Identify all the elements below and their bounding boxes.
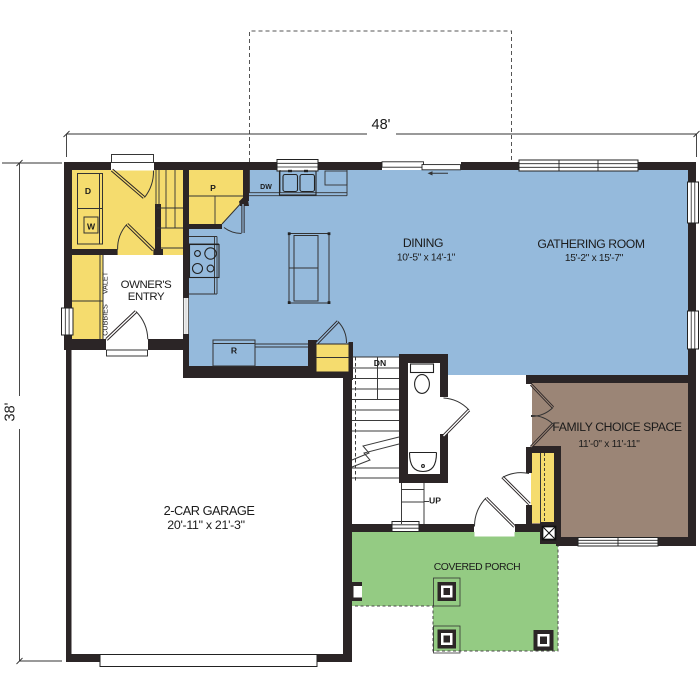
svg-text:10'-5" x 14'-1": 10'-5" x 14'-1" (397, 253, 456, 264)
svg-text:DN: DN (374, 358, 386, 368)
svg-text:11'-0" x 11'-11": 11'-0" x 11'-11" (578, 439, 640, 450)
svg-text:FAMILY CHOICE SPACE: FAMILY CHOICE SPACE (552, 420, 681, 434)
svg-text:D: D (85, 186, 91, 196)
svg-text:GATHERING ROOM: GATHERING ROOM (537, 237, 644, 251)
svg-text:P: P (210, 183, 216, 193)
svg-text:ENTRY: ENTRY (128, 291, 165, 303)
svg-text:DW: DW (260, 184, 272, 191)
svg-text:COVERED PORCH: COVERED PORCH (434, 562, 521, 573)
svg-text:20'-11" x 21'-3": 20'-11" x 21'-3" (167, 518, 244, 532)
svg-text:DINING: DINING (403, 236, 443, 250)
svg-text:W: W (87, 222, 96, 232)
svg-text:UP: UP (429, 496, 441, 506)
svg-text:R: R (231, 346, 238, 356)
svg-text:15'-2" x 15'-7": 15'-2" x 15'-7" (565, 253, 624, 264)
svg-text:38': 38' (3, 402, 19, 421)
svg-text:48': 48' (372, 117, 391, 133)
svg-text:OWNER'S: OWNER'S (121, 279, 172, 291)
svg-text:2-CAR GARAGE: 2-CAR GARAGE (164, 503, 255, 518)
svg-text:VALET: VALET (101, 271, 110, 294)
svg-text:CUBBIES: CUBBIES (101, 304, 110, 336)
